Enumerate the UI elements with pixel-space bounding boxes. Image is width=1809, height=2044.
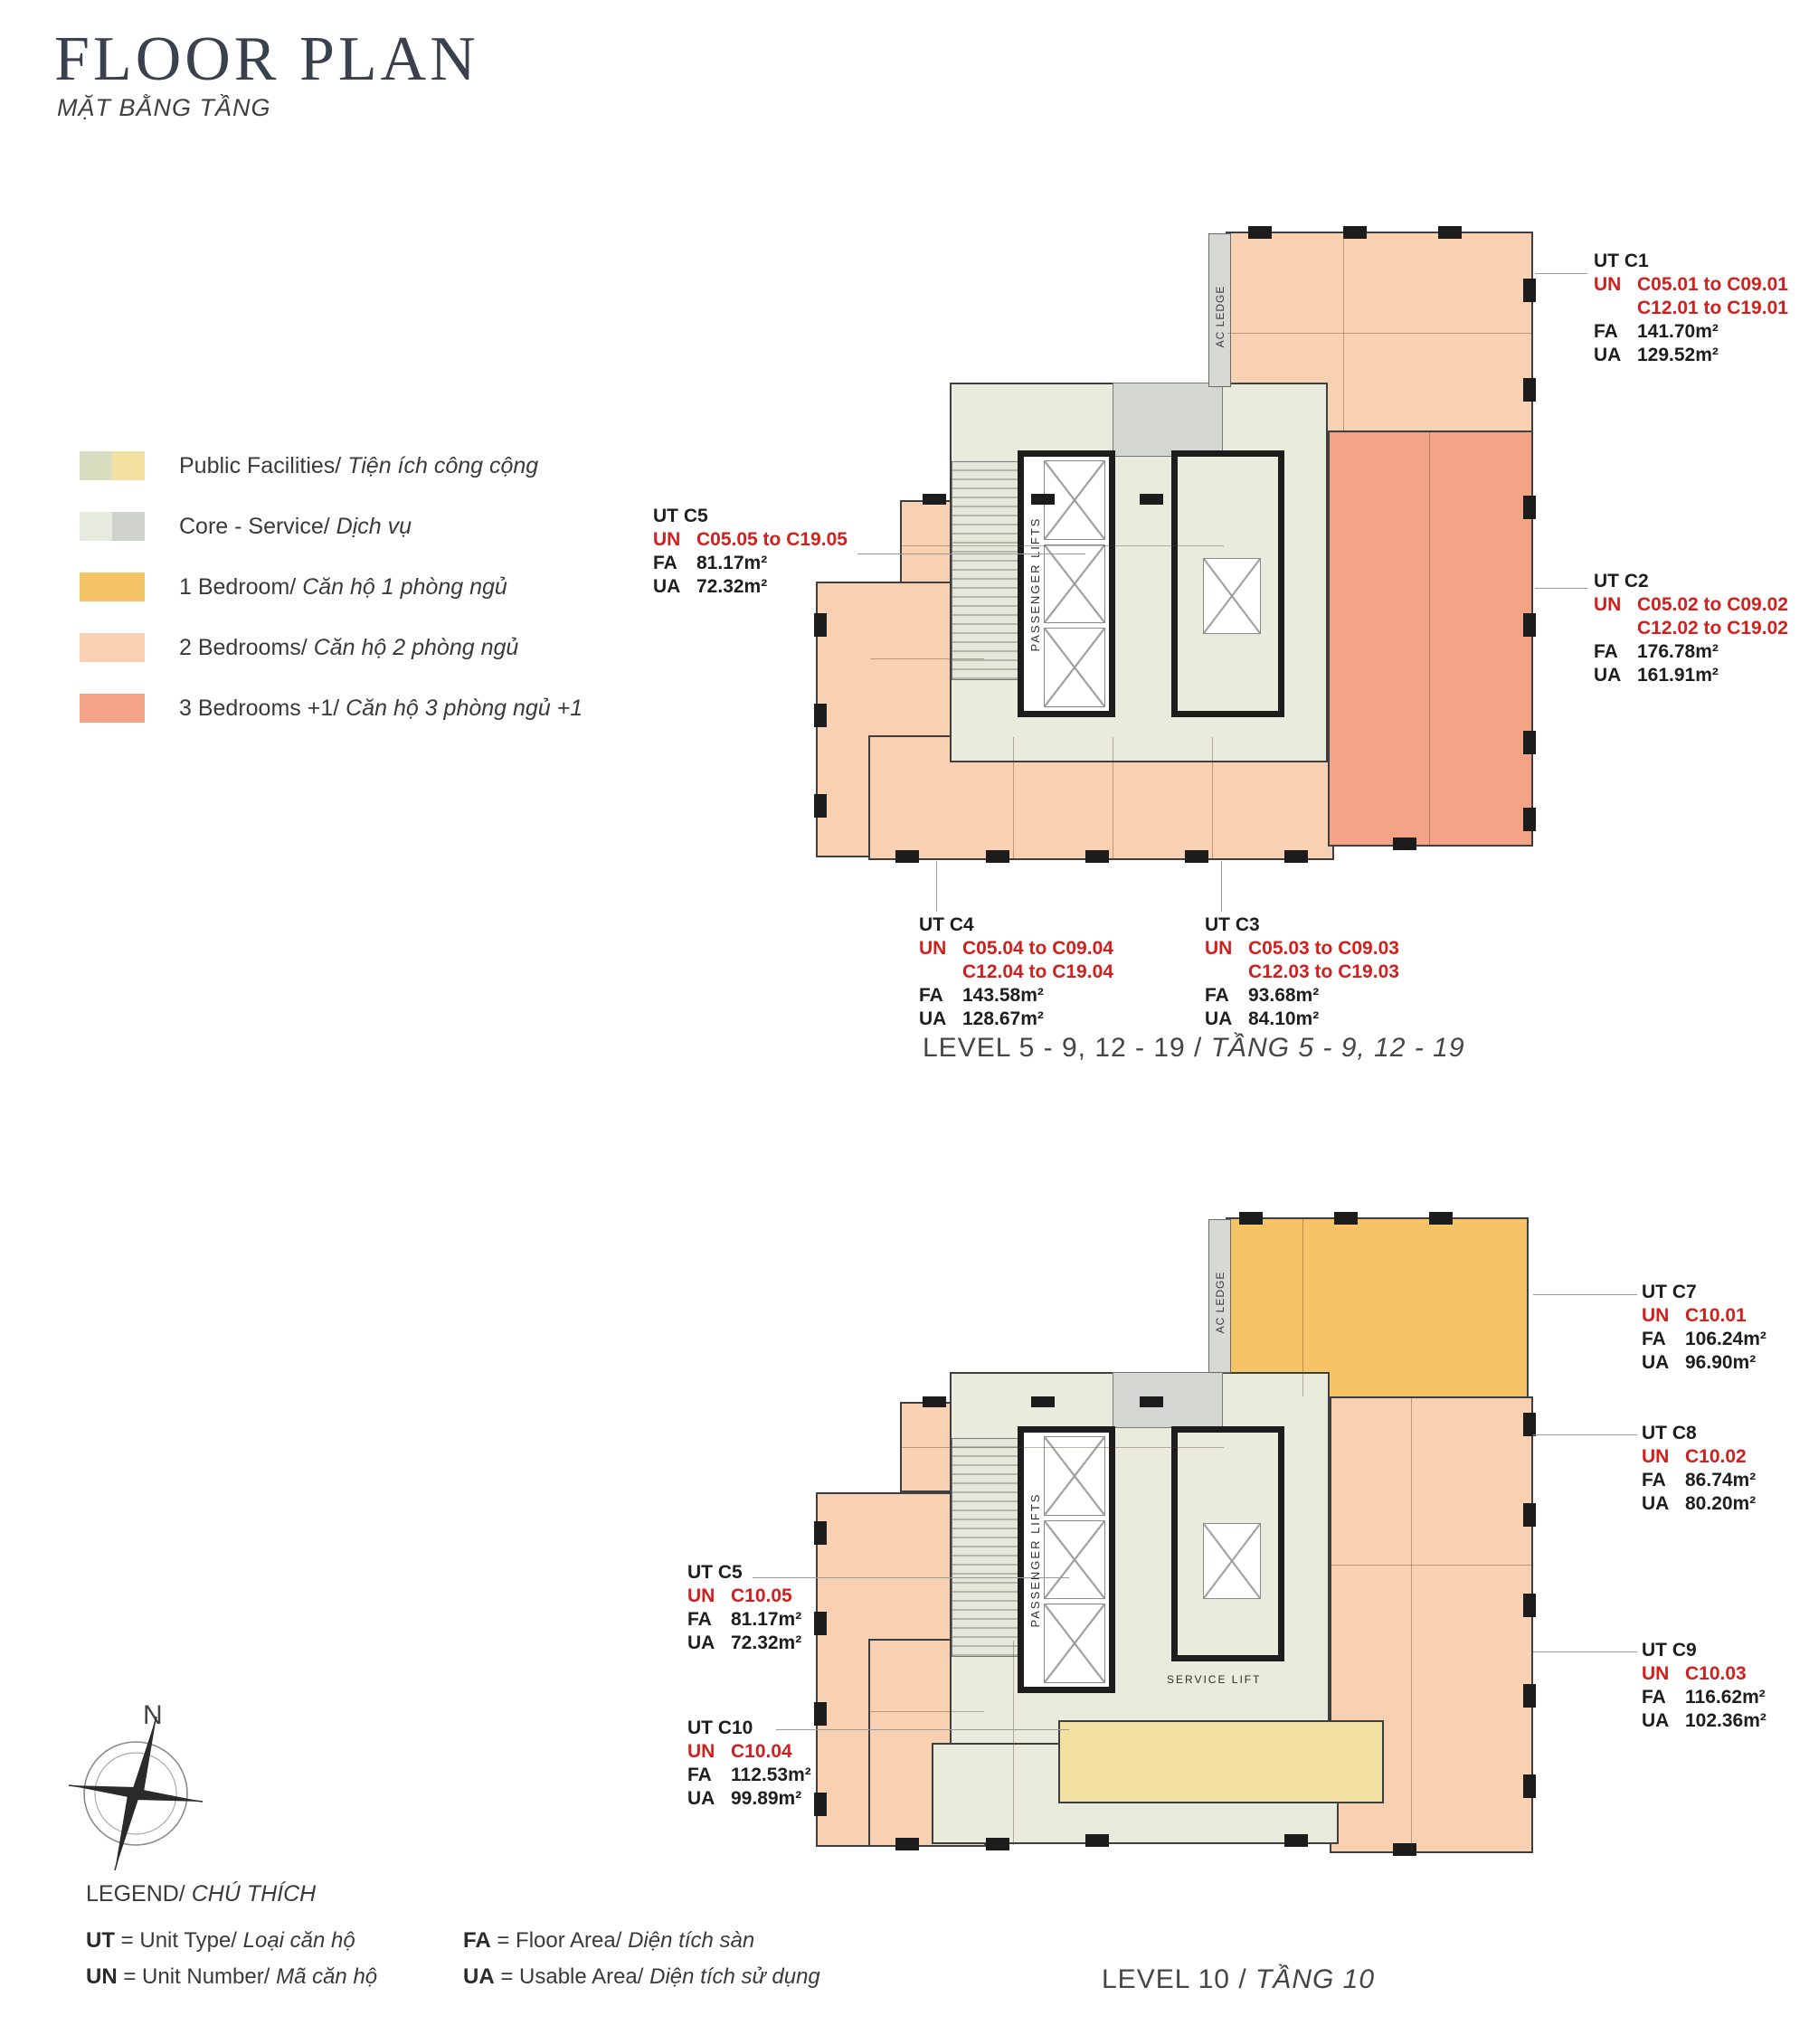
leader-line	[1535, 588, 1587, 589]
annotation-floor-area: 141.70m²	[1637, 321, 1719, 342]
annotation-floor-area: 176.78m²	[1637, 641, 1719, 662]
abbr-fa: FA	[1594, 640, 1637, 664]
abbr-un: UN	[687, 1740, 731, 1764]
service-lift-shaft	[1171, 1426, 1284, 1661]
column-tick	[1140, 1396, 1163, 1407]
legend-swatch	[80, 512, 145, 541]
column-tick	[1239, 1212, 1263, 1225]
legend-swatch	[80, 694, 145, 723]
legend-label-en: 1 Bedroom/	[179, 574, 296, 600]
annotation-ut-c7: UT C7 UNC10.01 FA106.24m² UA96.90m²	[1642, 1281, 1766, 1375]
page-subtitle: MẶT BẰNG TẦNG	[57, 94, 271, 122]
abbr-ua: UA	[1642, 1492, 1685, 1516]
def-vi: Mã căn hộ	[276, 1964, 377, 1989]
partition-line	[1013, 1641, 1014, 1845]
abbr-ua: UA	[1642, 1709, 1685, 1733]
legend-label-vi: Căn hộ 1 phòng ngủ	[302, 574, 507, 600]
public-facility-area	[1058, 1720, 1384, 1803]
partition-line	[902, 545, 1224, 546]
def-en: = Floor Area/	[497, 1928, 621, 1953]
legend-item-public-facilities: Public Facilities/ Tiện ích công cộng	[80, 450, 538, 481]
column-tick	[1523, 808, 1536, 831]
abbr-ua: UA	[687, 1632, 731, 1655]
annotation-usable-area: 84.10m²	[1248, 1008, 1319, 1029]
abbr-fa: FA	[653, 552, 696, 575]
lift-cell	[1044, 1436, 1105, 1516]
annotation-unit-numbers: C05.01 to C09.01	[1637, 274, 1788, 295]
ac-ledge-label: AC LEDGE	[1214, 1272, 1227, 1334]
legend-item-3-bedrooms: 3 Bedrooms +1/ Căn hộ 3 phòng ngủ +1	[80, 693, 582, 724]
annotation-ut-c9: UT C9 UNC10.03 FA116.62m² UA102.36m²	[1642, 1639, 1766, 1733]
annotation-ut-c5-lower: UT C5 UNC10.05 FA81.17m² UA72.32m²	[687, 1561, 801, 1655]
lift-cell	[1044, 544, 1105, 624]
abbr-un: UN	[919, 937, 962, 960]
column-tick	[1429, 1212, 1453, 1225]
annotation-unit-numbers: C05.05 to C19.05	[696, 529, 848, 550]
def-en: = Unit Number/	[123, 1964, 270, 1989]
annotation-unit-type: UT C9	[1642, 1639, 1766, 1662]
annotation-unit-type: UT C5	[687, 1561, 801, 1585]
leader-line	[1535, 273, 1587, 274]
column-tick	[1085, 1834, 1109, 1847]
abbr-un: UN	[1205, 937, 1248, 960]
abbr-un: UN	[687, 1585, 731, 1608]
abbr-fa: FA	[919, 984, 962, 1008]
legend-label-en: Public Facilities/	[179, 453, 341, 478]
partition-line	[1429, 431, 1430, 845]
def-abbr: FA	[463, 1928, 491, 1953]
leader-line	[857, 554, 1085, 554]
annotation-unit-type: UT C7	[1642, 1281, 1766, 1304]
abbr-ua: UA	[687, 1787, 731, 1811]
column-tick	[1523, 1503, 1536, 1527]
abbr-ua: UA	[1594, 344, 1637, 367]
ac-ledge-strip: AC LEDGE	[1208, 1219, 1231, 1373]
annotation-ut-c3: UT C3 UNC05.03 to C09.03 C12.03 to C19.0…	[1205, 913, 1399, 1031]
annotation-unit-numbers: C05.03 to C09.03	[1248, 938, 1399, 959]
partition-line	[902, 1447, 1224, 1448]
abbr-un: UN	[1642, 1662, 1685, 1686]
swatch-color	[112, 573, 145, 601]
annotation-ut-c10: UT C10 UNC10.04 FA112.53m² UA99.89m²	[687, 1717, 811, 1811]
leader-line	[1533, 1434, 1637, 1435]
column-tick	[1393, 1843, 1416, 1856]
footer-def-ua: UA = Usable Area/ Diện tích sử dụng	[463, 1964, 820, 1990]
column-tick	[1185, 850, 1208, 863]
annotation-usable-area: 161.91m²	[1637, 665, 1719, 686]
footer-legend-title: LEGEND/ CHÚ THÍCH	[86, 1881, 316, 1907]
annotation-ut-c2: UT C2 UNC05.02 to C09.02 C12.02 to C19.0…	[1594, 570, 1788, 687]
column-tick	[1523, 1413, 1536, 1436]
column-tick	[1334, 1212, 1358, 1225]
column-tick	[1031, 1396, 1055, 1407]
legend-label-vi: Tiện ích công cộng	[347, 453, 538, 478]
abbr-un: UN	[1642, 1445, 1685, 1469]
annotation-usable-area: 99.89m²	[731, 1788, 801, 1809]
column-tick	[814, 1793, 827, 1816]
annotation-unit-numbers: C12.01 to C19.01	[1637, 297, 1788, 320]
floor-plan-lower: PASSENGER LIFTS SERVICE LIFT AC LEDGE	[814, 1205, 1538, 1863]
swatch-color	[112, 512, 145, 541]
service-lift-label: SERVICE LIFT	[1167, 1673, 1261, 1686]
annotation-unit-type: UT C5	[653, 505, 848, 528]
swatch-color	[80, 633, 112, 662]
page-title: FLOOR PLAN	[54, 24, 479, 96]
annotation-unit-numbers: C10.01	[1685, 1305, 1747, 1326]
abbr-ua: UA	[1594, 664, 1637, 687]
def-en: = Usable Area/	[500, 1964, 643, 1989]
footer-def-ut: UT = Unit Type/ Loại căn hộ	[86, 1928, 355, 1954]
def-vi: Diện tích sàn	[628, 1928, 754, 1953]
def-abbr: UN	[86, 1964, 118, 1989]
swatch-color	[112, 694, 145, 723]
column-tick	[1523, 613, 1536, 637]
annotation-floor-area: 143.58m²	[962, 985, 1044, 1006]
column-tick	[986, 1838, 1009, 1850]
unit-block-c7	[1226, 1217, 1529, 1398]
abbr-ua: UA	[919, 1008, 962, 1031]
annotation-floor-area: 116.62m²	[1685, 1687, 1766, 1708]
annotation-floor-area: 93.68m²	[1248, 985, 1319, 1006]
column-tick	[814, 704, 827, 727]
annotation-usable-area: 72.32m²	[696, 576, 767, 597]
column-tick	[1523, 731, 1536, 754]
swatch-color	[80, 694, 112, 723]
column-tick	[895, 1838, 919, 1850]
lift-cell	[1044, 628, 1105, 707]
lift-cell	[1203, 558, 1261, 634]
caption-vi: TẦNG 10	[1255, 1964, 1375, 1994]
column-tick	[1523, 1594, 1536, 1617]
legend-item-1-bedroom: 1 Bedroom/ Căn hộ 1 phòng ngủ	[80, 572, 507, 602]
svg-text:N: N	[143, 1700, 163, 1730]
annotation-usable-area: 129.52m²	[1637, 345, 1719, 365]
abbr-ua: UA	[1642, 1351, 1685, 1375]
passenger-lifts-label: PASSENGER LIFTS	[1028, 516, 1042, 651]
annotation-usable-area: 96.90m²	[1685, 1352, 1756, 1373]
partition-line	[1113, 737, 1113, 858]
abbr-un: UN	[1642, 1304, 1685, 1328]
annotation-ut-c1: UT C1 UNC05.01 to C09.01 C12.01 to C19.0…	[1594, 250, 1788, 367]
partition-line	[870, 1711, 984, 1712]
abbr-fa: FA	[1642, 1328, 1685, 1351]
legend-item-2-bedrooms: 2 Bedrooms/ Căn hộ 2 phòng ngủ	[80, 632, 518, 663]
partition-line	[1227, 333, 1531, 334]
column-tick	[1523, 496, 1536, 519]
abbr-fa: FA	[1594, 320, 1637, 344]
legend-title-en: LEGEND/	[86, 1881, 185, 1907]
abbr-un: UN	[653, 528, 696, 552]
annotation-floor-area: 106.24m²	[1685, 1329, 1766, 1349]
annotation-unit-numbers: C10.05	[731, 1585, 792, 1606]
leader-line	[1533, 1651, 1637, 1652]
def-abbr: UA	[463, 1964, 495, 1989]
column-tick	[1031, 494, 1055, 505]
partition-line	[1302, 1219, 1303, 1396]
annotation-unit-type: UT C2	[1594, 570, 1788, 593]
abbr-fa: FA	[1642, 1686, 1685, 1709]
caption-en: LEVEL 10 /	[1102, 1964, 1247, 1994]
column-tick	[814, 1521, 827, 1545]
column-tick	[814, 794, 827, 818]
column-tick	[1393, 837, 1416, 850]
legend-swatch	[80, 633, 145, 662]
annotation-usable-area: 72.32m²	[731, 1632, 801, 1653]
caption-en: LEVEL 5 - 9, 12 - 19 /	[923, 1033, 1202, 1063]
legend-label-en: Core - Service/	[179, 514, 330, 539]
annotation-floor-area: 112.53m²	[731, 1765, 811, 1785]
abbr-fa: FA	[687, 1608, 731, 1632]
annotation-unit-numbers: C10.02	[1685, 1446, 1747, 1467]
swatch-color	[112, 633, 145, 662]
annotation-unit-numbers: C12.04 to C19.04	[962, 960, 1113, 984]
column-tick	[814, 1612, 827, 1635]
abbr-ua: UA	[653, 575, 696, 599]
leader-line	[776, 1729, 1069, 1730]
lift-shaft	[1171, 450, 1284, 717]
annotation-floor-area: 81.17m²	[696, 553, 767, 573]
legend-label-en: 2 Bedrooms/	[179, 635, 308, 660]
column-tick	[1438, 226, 1462, 239]
passenger-lifts-label: PASSENGER LIFTS	[1028, 1492, 1042, 1627]
lift-cell	[1044, 1604, 1105, 1683]
footer-def-un: UN = Unit Number/ Mã căn hộ	[86, 1964, 377, 1990]
column-tick	[1085, 850, 1109, 863]
column-tick	[986, 850, 1009, 863]
annotation-usable-area: 102.36m²	[1685, 1710, 1766, 1731]
annotation-unit-numbers: C05.02 to C09.02	[1637, 594, 1788, 615]
legend-label-vi: Căn hộ 3 phòng ngủ +1	[346, 696, 582, 721]
stairs	[952, 461, 1018, 680]
column-tick	[1284, 850, 1308, 863]
annotation-unit-type: UT C3	[1205, 913, 1399, 937]
swatch-color	[80, 512, 112, 541]
annotation-floor-area: 81.17m²	[731, 1609, 801, 1630]
annotation-unit-numbers: C10.03	[1685, 1663, 1747, 1684]
annotation-unit-type: UT C10	[687, 1717, 811, 1740]
annotation-unit-numbers: C12.03 to C19.03	[1248, 960, 1399, 984]
annotation-unit-numbers: C10.04	[731, 1741, 792, 1762]
annotation-unit-type: UT C4	[919, 913, 1113, 937]
def-vi: Loại căn hộ	[243, 1928, 355, 1953]
partition-line	[870, 658, 984, 659]
footer-def-fa: FA = Floor Area/ Diện tích sàn	[463, 1928, 754, 1954]
column-tick	[1248, 226, 1272, 239]
legend-label-vi: Căn hộ 2 phòng ngủ	[314, 635, 519, 660]
caption-level-5-19: LEVEL 5 - 9, 12 - 19 / TẦNG 5 - 9, 12 - …	[923, 1033, 1465, 1064]
column-tick	[923, 494, 946, 505]
unit-block-c2	[1328, 431, 1533, 847]
annotation-unit-type: UT C8	[1642, 1422, 1756, 1445]
annotation-floor-area: 86.74m²	[1685, 1470, 1756, 1490]
legend-title-vi: CHÚ THÍCH	[192, 1881, 317, 1907]
legend-item-core-service: Core - Service/ Dịch vụ	[80, 511, 412, 542]
annotation-unit-numbers: C05.04 to C09.04	[962, 938, 1113, 959]
column-tick	[895, 850, 919, 863]
column-tick	[814, 613, 827, 637]
legend-label-vi: Dịch vụ	[336, 514, 412, 539]
leader-line	[753, 1577, 1069, 1578]
annotation-ut-c4: UT C4 UNC05.04 to C09.04 C12.04 to C19.0…	[919, 913, 1113, 1031]
abbr-fa: FA	[1642, 1469, 1685, 1492]
legend-swatch	[80, 573, 145, 601]
annotation-unit-type: UT C1	[1594, 250, 1788, 273]
column-tick	[1523, 279, 1536, 302]
swatch-color	[80, 573, 112, 601]
service-box	[1113, 383, 1223, 457]
abbr-un: UN	[1594, 593, 1637, 617]
column-tick	[1343, 226, 1367, 239]
leader-line	[936, 861, 937, 912]
column-tick	[1523, 1774, 1536, 1798]
column-tick	[814, 1702, 827, 1726]
leader-line	[1221, 861, 1222, 912]
abbr-un: UN	[1594, 273, 1637, 297]
service-box	[1113, 1372, 1223, 1428]
caption-vi: TẦNG 5 - 9, 12 - 19	[1211, 1033, 1465, 1063]
swatch-color	[80, 451, 112, 480]
annotation-unit-numbers: C12.02 to C19.02	[1637, 617, 1788, 640]
column-tick	[1140, 494, 1163, 505]
column-tick	[923, 1396, 946, 1407]
def-abbr: UT	[86, 1928, 115, 1953]
annotation-usable-area: 80.20m²	[1685, 1493, 1756, 1514]
annotation-ut-c5-upper: UT C5 UNC05.05 to C19.05 FA81.17m² UA72.…	[653, 505, 848, 599]
ac-ledge-strip: AC LEDGE	[1208, 233, 1231, 387]
abbr-fa: FA	[1205, 984, 1248, 1008]
legend-label-en: 3 Bedrooms +1/	[179, 696, 339, 721]
partition-line	[1411, 1398, 1412, 1850]
swatch-color	[112, 451, 145, 480]
compass-north-icon: N	[63, 1680, 226, 1870]
annotation-usable-area: 128.67m²	[962, 1008, 1044, 1029]
partition-line	[1013, 737, 1014, 858]
leader-line	[1533, 1294, 1637, 1295]
def-vi: Diện tích sử dụng	[649, 1964, 820, 1989]
def-en: = Unit Type/	[121, 1928, 237, 1953]
lift-cell	[1044, 1520, 1105, 1600]
ac-ledge-label: AC LEDGE	[1214, 286, 1227, 348]
legend-swatch	[80, 451, 145, 480]
passenger-lift-block: PASSENGER LIFTS	[1018, 1426, 1115, 1693]
passenger-lift-block: PASSENGER LIFTS	[1018, 450, 1115, 717]
abbr-fa: FA	[687, 1764, 731, 1787]
partition-line	[1331, 1565, 1531, 1566]
column-tick	[1523, 1684, 1536, 1708]
annotation-ut-c8: UT C8 UNC10.02 FA86.74m² UA80.20m²	[1642, 1422, 1756, 1516]
caption-level-10: LEVEL 10 / TẦNG 10	[1102, 1964, 1375, 1995]
stairs	[952, 1438, 1018, 1657]
lift-cell	[1203, 1523, 1261, 1599]
floor-plan-upper: PASSENGER LIFTS AC LEDGE	[814, 224, 1538, 862]
abbr-ua: UA	[1205, 1008, 1248, 1031]
column-tick	[1523, 378, 1536, 402]
partition-line	[1212, 737, 1213, 858]
column-tick	[1284, 1834, 1308, 1847]
